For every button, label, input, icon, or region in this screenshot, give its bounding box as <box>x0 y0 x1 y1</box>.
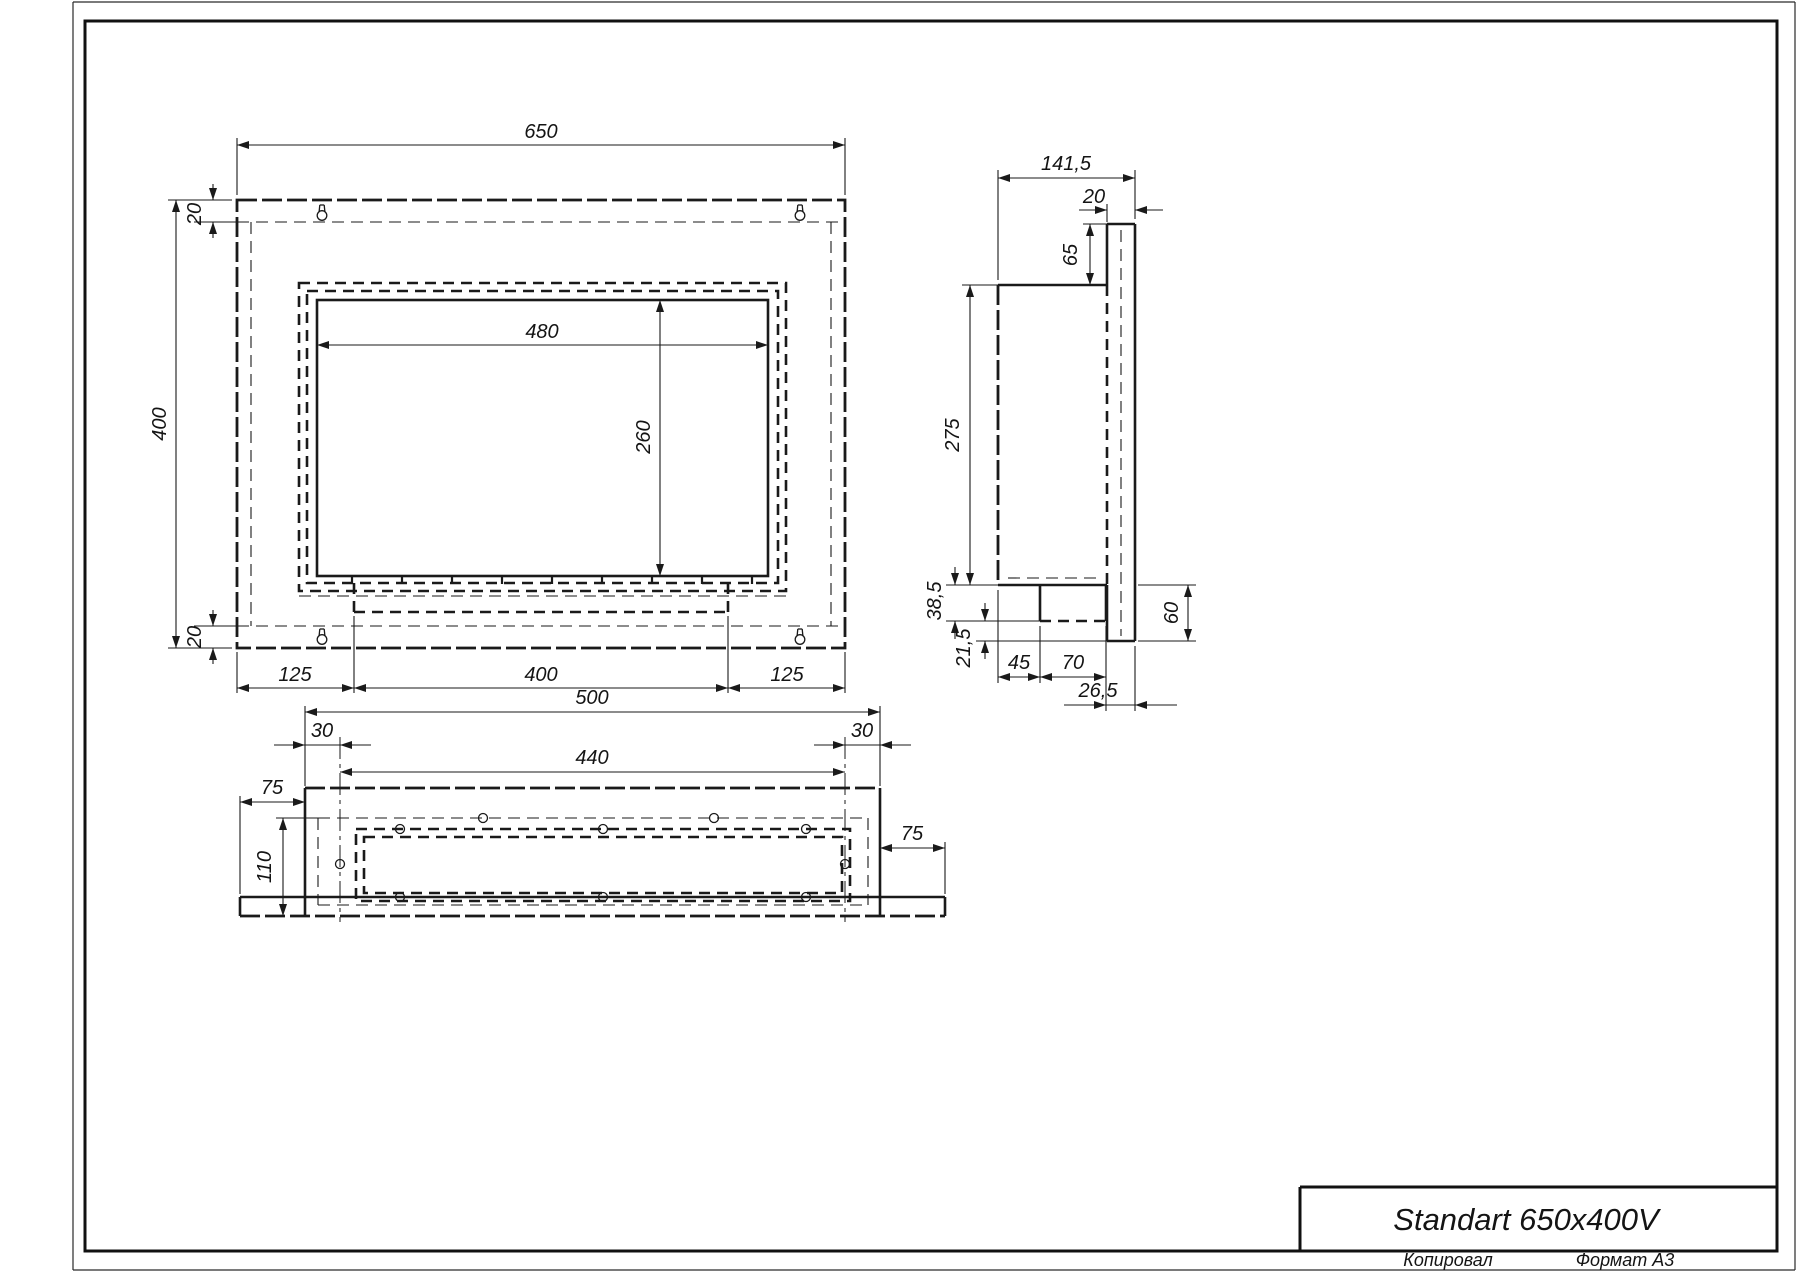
dim-label-75-left: 75 <box>261 777 284 799</box>
dim-plate-below: 60 <box>1138 585 1196 641</box>
dim-label-60: 60 <box>1161 602 1183 624</box>
dim-label-125-left: 125 <box>278 664 312 686</box>
dim-label-141-5: 141,5 <box>1041 153 1092 175</box>
side-view: 141,5 20 65 275 38,5 <box>924 153 1196 711</box>
front-outer-contour <box>237 200 845 648</box>
dim-label-260: 260 <box>633 420 655 454</box>
format-label: Формат А3 <box>1576 1250 1675 1270</box>
dim-label-125-right: 125 <box>770 664 804 686</box>
drawing-sheet: 650 400 20 20 480 <box>0 0 1800 1273</box>
dim-label-38-5: 38,5 <box>924 581 946 621</box>
dim-front-height: 400 <box>149 200 232 648</box>
keyhole-icon <box>317 629 327 644</box>
dim-label-275: 275 <box>942 417 964 452</box>
frame-rect <box>85 21 1777 1251</box>
dim-label-30-right: 30 <box>851 720 873 742</box>
keyhole-icon <box>795 205 805 220</box>
dim-label-500: 500 <box>575 687 608 709</box>
dim-label-480: 480 <box>525 321 558 343</box>
bottom-view: 500 30 30 440 75 7 <box>240 687 945 922</box>
dim-tank-drop: 38,5 <box>924 567 1042 639</box>
dim-label-20-top: 20 <box>184 203 206 226</box>
dim-label-45: 45 <box>1008 652 1031 674</box>
front-plate-edge <box>1107 224 1135 641</box>
dim-hole-inset-right: 30 <box>814 720 911 745</box>
dim-hole-inset-left: 30 <box>274 720 371 745</box>
dim-front-top-inset: 20 <box>184 184 240 238</box>
dim-label-400v: 400 <box>149 407 171 440</box>
front-view: 650 400 20 20 480 <box>149 121 845 693</box>
dim-label-440: 440 <box>575 747 608 769</box>
dim-label-20-plate: 20 <box>1082 186 1105 208</box>
dim-label-65: 65 <box>1060 243 1082 266</box>
dim-front-bottom-row: 125 400 125 <box>237 616 845 693</box>
dim-label-650: 650 <box>524 121 557 143</box>
dim-label-70: 70 <box>1062 652 1084 674</box>
fuel-tank-hidden <box>354 583 728 612</box>
dim-front-bottom-inset: 20 <box>184 610 240 664</box>
dim-overhang-right: 75 <box>880 823 945 894</box>
dim-label-20-bottom: 20 <box>184 626 206 649</box>
sheet-footer: Копировал Формат А3 <box>1403 1250 1674 1270</box>
dim-label-26-5: 26,5 <box>1078 680 1119 702</box>
dim-opening-width: 480 <box>317 321 768 345</box>
dim-plate-above: 65 <box>1060 224 1110 285</box>
dim-bottom-width: 500 <box>305 687 880 786</box>
dim-label-400-tank: 400 <box>524 664 557 686</box>
dim-hole-span: 440 <box>340 747 845 772</box>
title-block: Standart 650x400V <box>1300 1187 1777 1251</box>
keyhole-icon <box>317 205 327 220</box>
dim-front-width: 650 <box>237 121 845 195</box>
dim-label-110: 110 <box>254 851 276 883</box>
dim-opening-height: 260 <box>633 300 660 576</box>
bottom-holes <box>336 814 850 902</box>
paper-border <box>73 2 1795 1270</box>
dim-tank-gap: 21,5 <box>953 603 1109 668</box>
title-block-model: Standart 650x400V <box>1393 1202 1662 1237</box>
keyhole-mounting-holes <box>317 205 805 644</box>
dim-label-30-left: 30 <box>311 720 333 742</box>
dim-label-21-5: 21,5 <box>953 628 975 669</box>
keyhole-icon <box>795 629 805 644</box>
drawing-frame <box>85 21 1777 1251</box>
dim-body-height: 275 <box>942 285 1000 585</box>
dim-plate-thickness: 20 <box>1079 186 1163 222</box>
copied-label: Копировал <box>1403 1250 1493 1270</box>
dim-opening-depth: 110 <box>254 818 320 916</box>
dim-label-75-right: 75 <box>901 823 924 845</box>
